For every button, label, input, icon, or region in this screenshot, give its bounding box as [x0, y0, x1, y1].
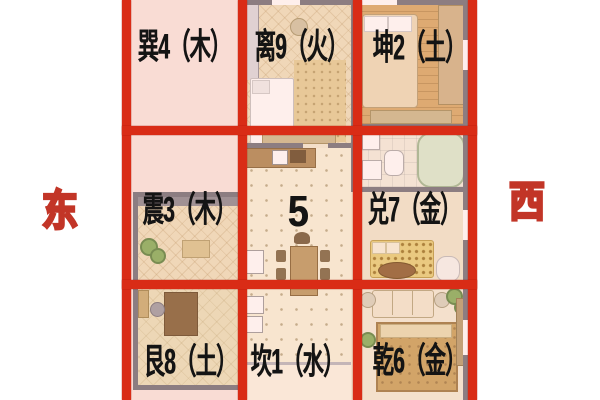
compass-east-label: 东	[42, 190, 78, 232]
grid-line-vertical	[353, 0, 362, 400]
grid-line-vertical	[238, 0, 247, 400]
cell-label-zhen3: 震3（木）	[143, 193, 236, 228]
cell-label-qian6: 乾6（金）	[373, 344, 466, 379]
cell-label-kun2: 坤2（土）	[373, 31, 466, 66]
cell-label-xun4: 巽4（木）	[138, 30, 231, 65]
grid-line-vertical	[468, 0, 477, 400]
cell-label-gen8: 艮8（土）	[144, 345, 237, 380]
compass-west-label: 西	[509, 181, 545, 223]
cell-label-center5: 5	[288, 187, 309, 237]
grid-line-vertical	[122, 0, 131, 400]
feng-shui-floorplan: 巽4（木） 离9（火） 坤2（土） 震3（木） 5 兑7（金） 艮8（土） 坎1…	[0, 0, 600, 400]
grid-line-horizontal	[122, 280, 477, 289]
cell-label-dui7: 兑7（金）	[368, 193, 461, 228]
grid-line-horizontal	[122, 126, 477, 135]
cell-label-li9: 离9（火）	[255, 30, 348, 65]
cell-label-kan1: 坎1（水）	[251, 345, 344, 380]
